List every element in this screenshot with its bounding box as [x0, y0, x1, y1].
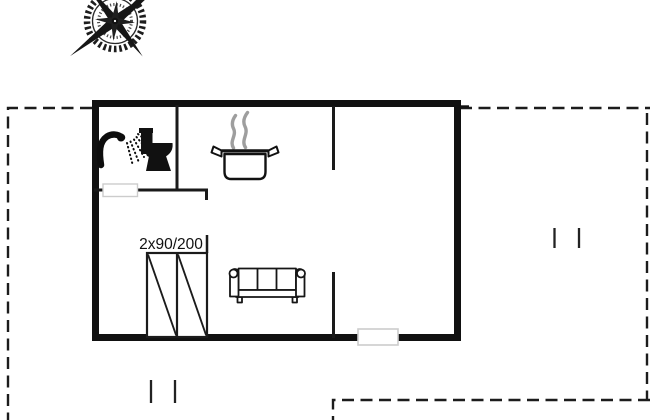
entrance-door-opening — [358, 329, 398, 345]
floor-plan-page: 2x90/200 — [0, 0, 650, 420]
bathroom-door-opening — [103, 184, 138, 197]
steam-icon — [232, 113, 247, 149]
boundary-bottom — [333, 400, 650, 420]
boundary-left — [8, 108, 92, 420]
sofa-icon — [230, 269, 306, 303]
floor-plan-canvas: 2x90/200 — [0, 0, 650, 420]
compass-rose-icon — [67, 0, 163, 60]
toilet-icon — [139, 128, 173, 171]
twin-bed-icon — [147, 253, 207, 337]
boundary-tick-marks — [151, 228, 579, 403]
bed-size-label: 2x90/200 — [139, 236, 203, 253]
cooking-pot-icon — [212, 147, 279, 180]
property-boundary — [8, 108, 650, 420]
